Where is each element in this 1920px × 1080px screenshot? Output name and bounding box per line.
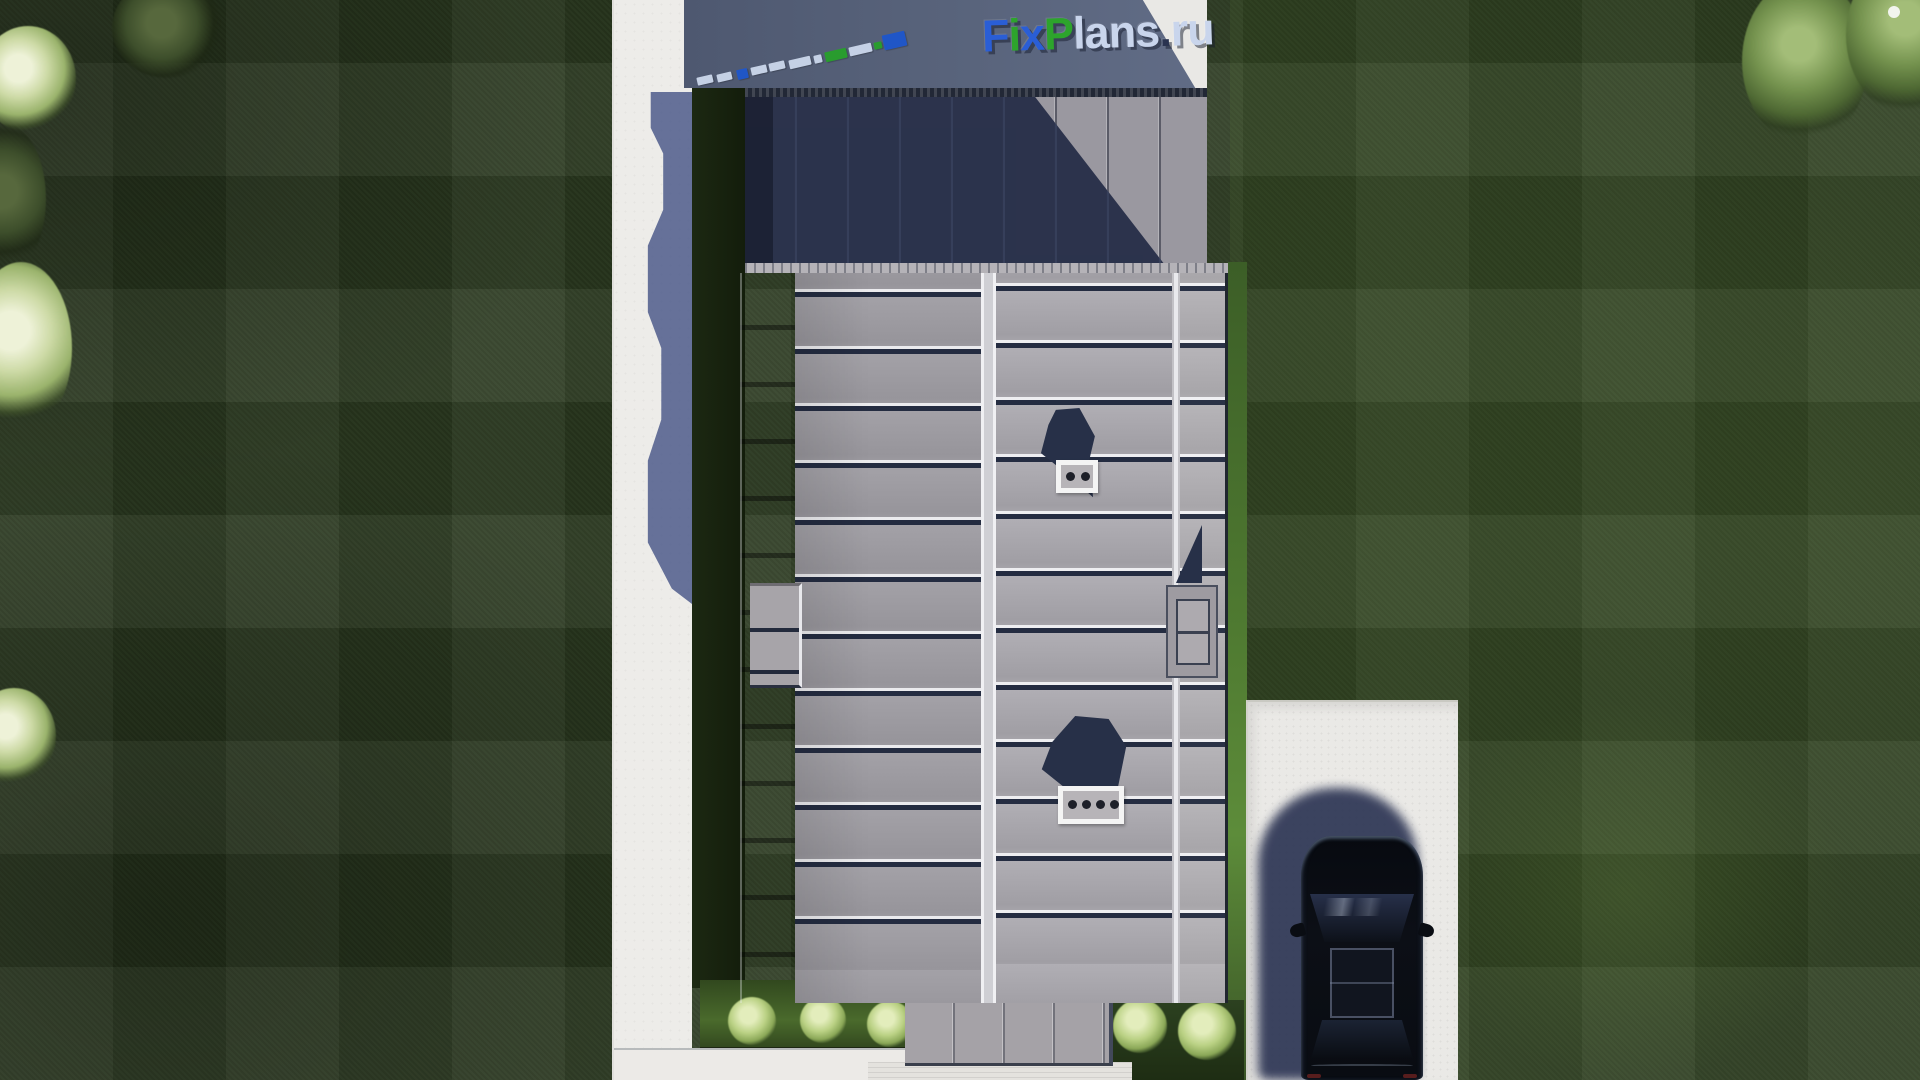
garage-roof-left-edge (745, 97, 773, 265)
car-sunroof-split (1330, 982, 1394, 984)
roof-vent-upper (1056, 460, 1098, 493)
bush (1178, 1002, 1236, 1060)
main-roof-center-valley (981, 273, 996, 1003)
porch-canopy (905, 1003, 1113, 1066)
vent-hole (1096, 800, 1105, 809)
white-speck (1888, 6, 1900, 18)
logo-letter: F (981, 10, 1009, 62)
fixplans-logo: FixPlans.ru (981, 6, 1214, 58)
bottom-walkway (614, 1048, 910, 1080)
aerial-house-render: FixPlans.ru (0, 0, 1920, 1080)
vent-hole (1066, 472, 1075, 481)
bush (800, 997, 846, 1043)
right-bay-inner-panel (1176, 599, 1210, 665)
logo-letter: P (1043, 8, 1074, 60)
vent-hole (1082, 800, 1091, 809)
car-rear-window (1308, 1020, 1416, 1058)
car-taillight-right (1403, 1074, 1417, 1078)
car-trunk-line (1311, 1064, 1413, 1067)
main-roof-left-slope (795, 273, 981, 1003)
vent-hole (1081, 472, 1090, 481)
vent-hole (1110, 800, 1119, 809)
main-roof-right-slope (996, 273, 1172, 1003)
sunlit-grass-strip (1228, 262, 1247, 1080)
shaded-grass-strip (692, 88, 745, 988)
logo-letter: x (1019, 9, 1045, 61)
car-taillight-left (1307, 1074, 1321, 1078)
vent-hole (1068, 800, 1077, 809)
logo-letter: lans (1072, 5, 1160, 59)
logo-letter: ru (1170, 3, 1215, 55)
lawn-driveway-glow (1430, 660, 1920, 1080)
roof-gutter-band (745, 263, 1228, 273)
left-bay-bumpout (750, 583, 802, 688)
roof-vent-lower (1058, 786, 1124, 824)
bush (1113, 999, 1167, 1053)
car-windshield-glint (1317, 898, 1405, 916)
bush (728, 997, 776, 1045)
right-bay-bumpout (1166, 585, 1218, 678)
car (1301, 836, 1423, 1080)
garage-roof-fascia (745, 88, 1207, 97)
